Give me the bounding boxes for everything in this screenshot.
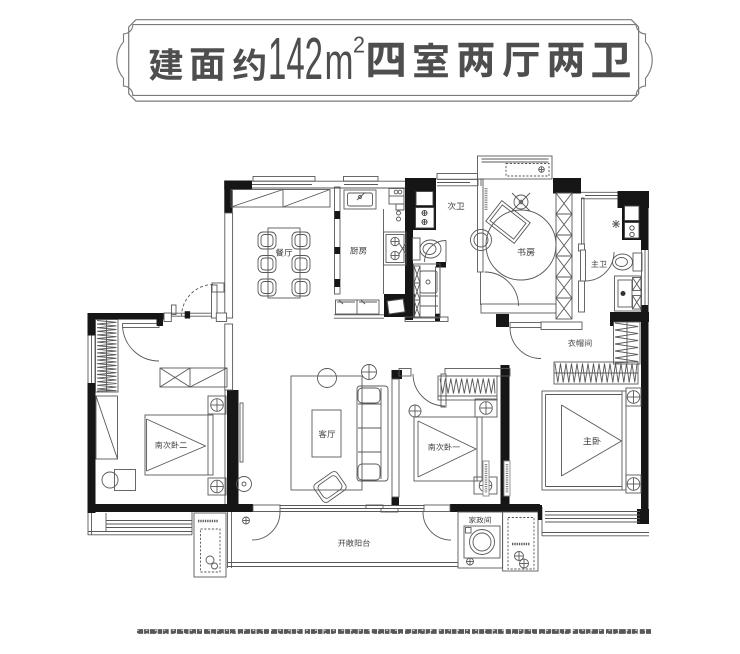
svg-text:142: 142 [268,26,323,92]
svg-text:m: m [325,33,354,90]
svg-text:2: 2 [353,32,365,58]
